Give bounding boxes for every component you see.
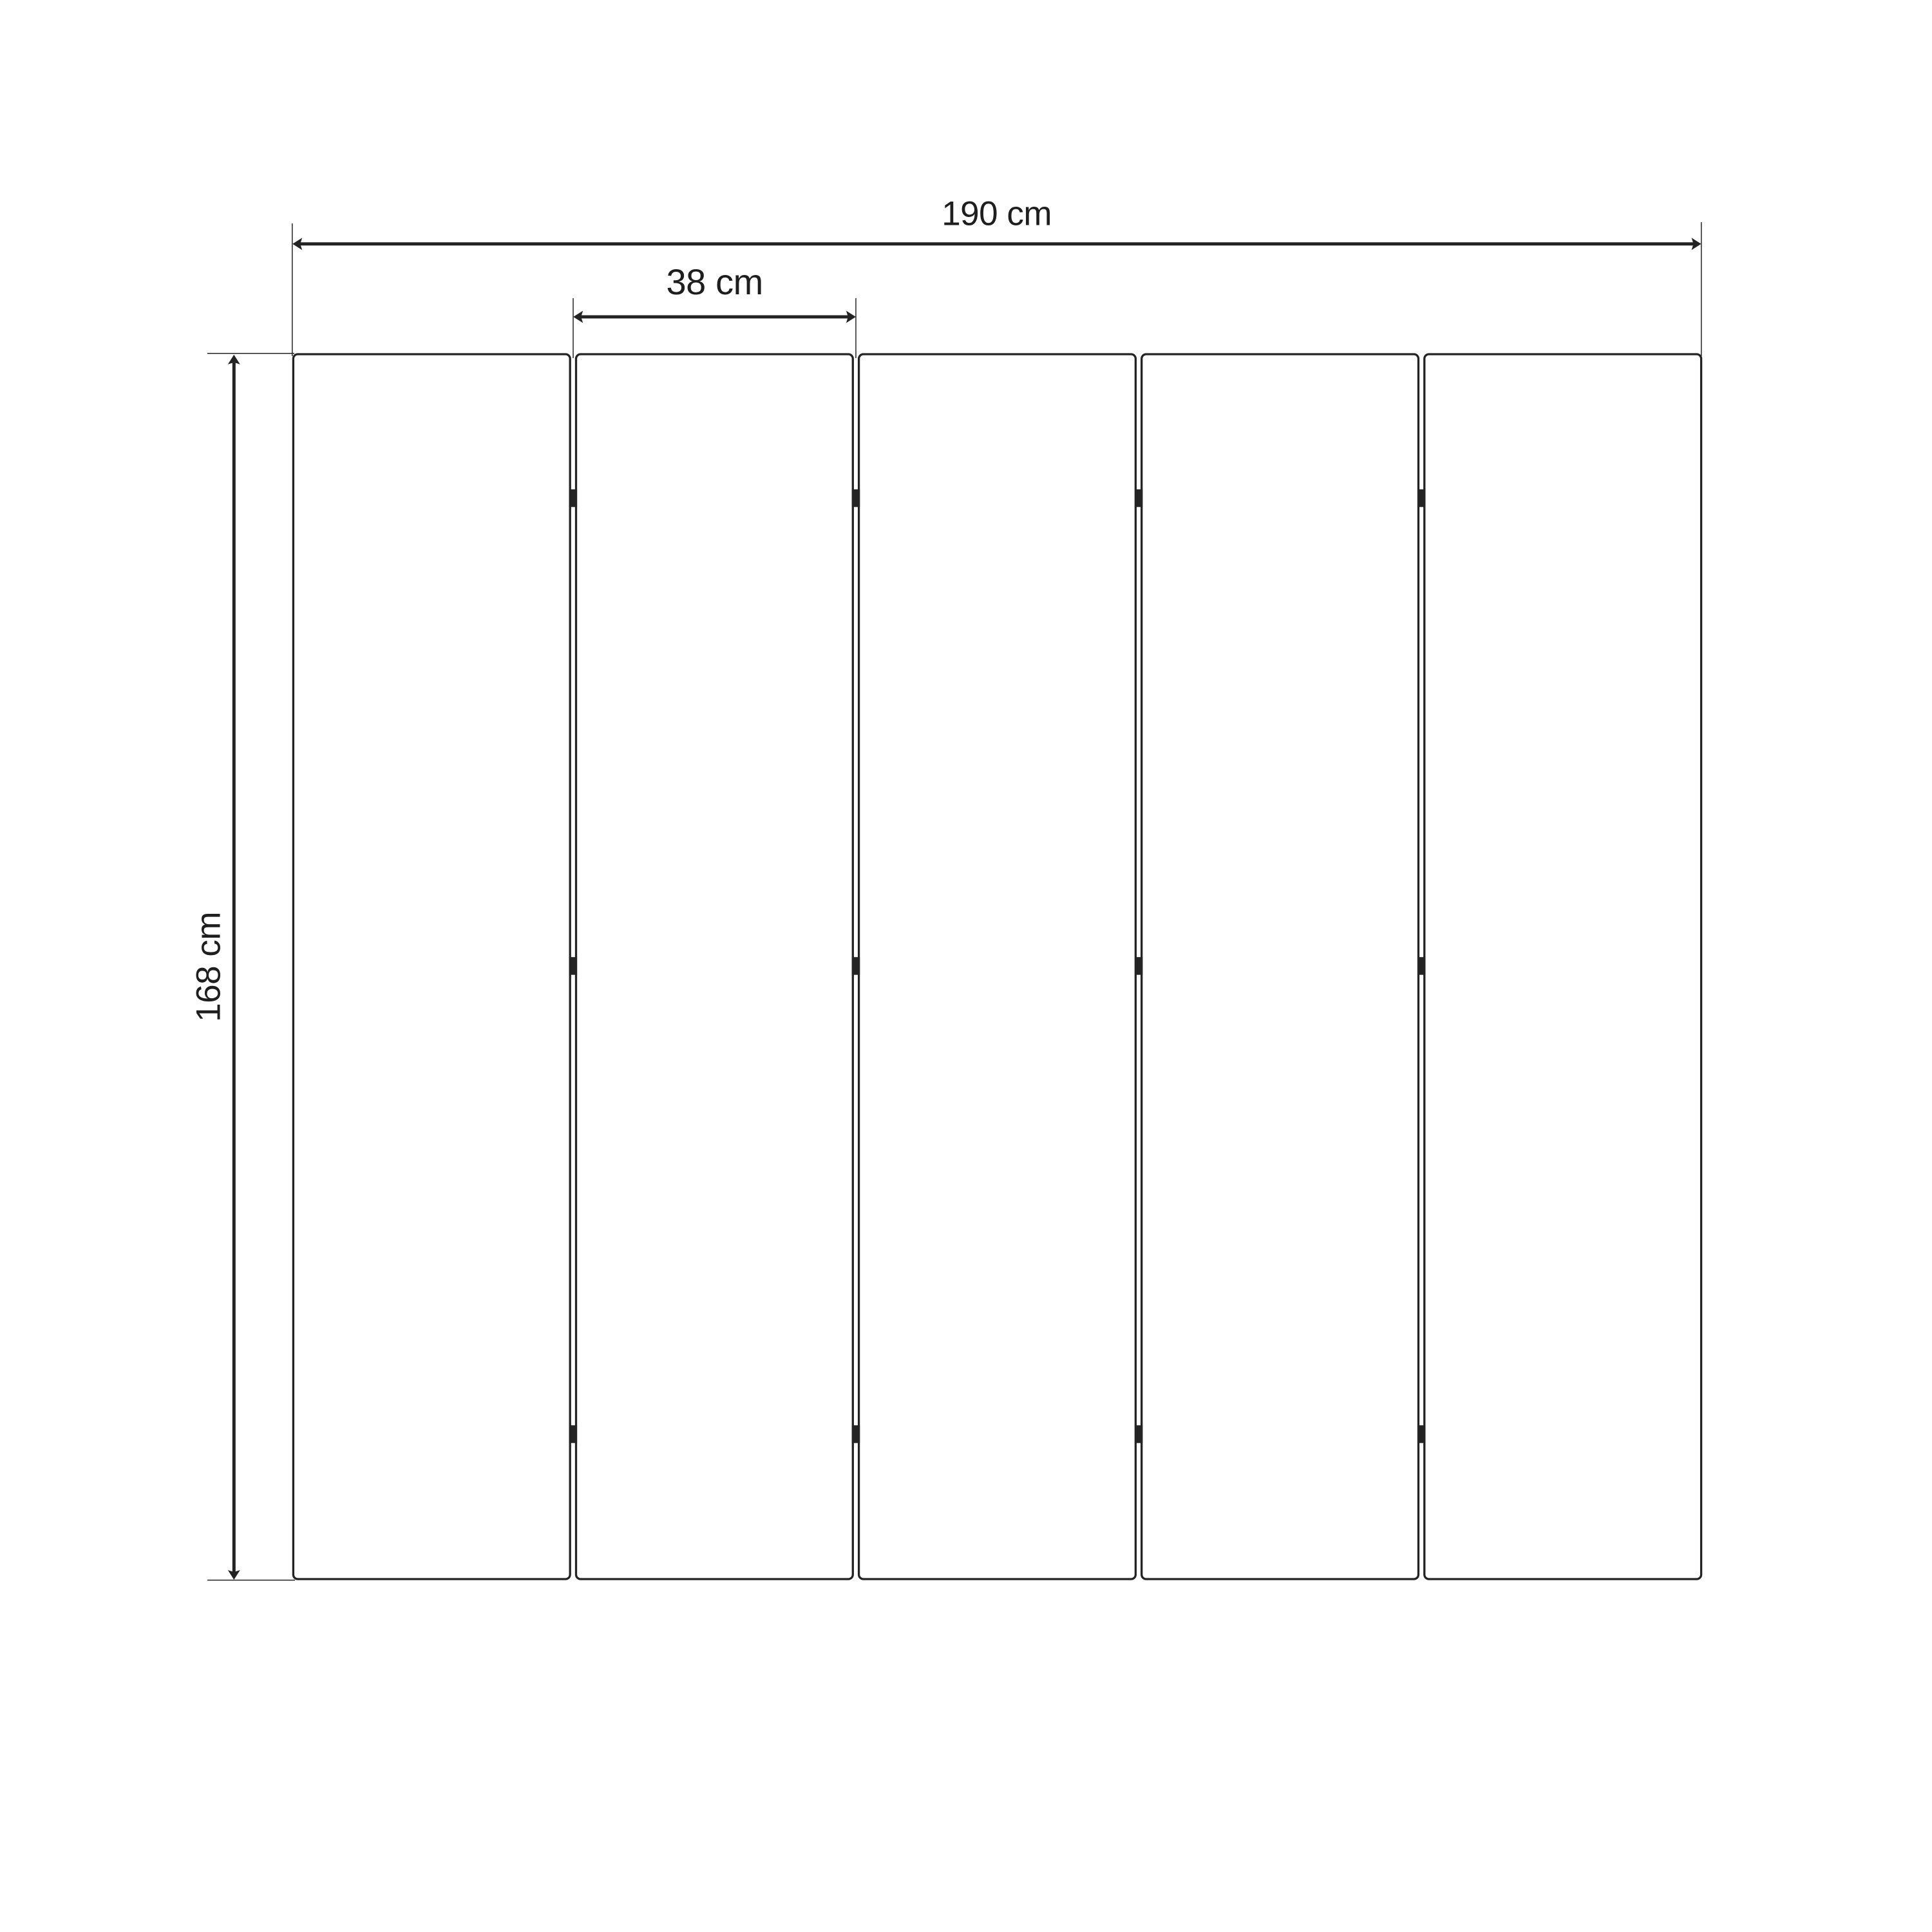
svg-text:38 cm: 38 cm — [666, 261, 763, 302]
svg-text:168 cm: 168 cm — [189, 912, 227, 1022]
svg-text:190 cm: 190 cm — [942, 195, 1052, 233]
